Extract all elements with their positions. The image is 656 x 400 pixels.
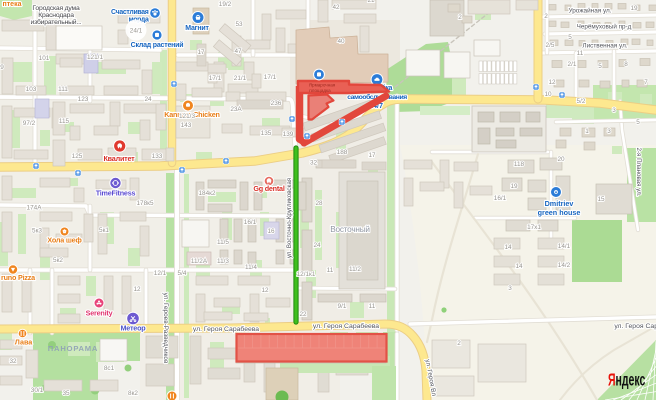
svg-text:11/2: 11/2 [349,266,361,273]
svg-text:121/1: 121/1 [87,54,103,61]
svg-text:Восточный: Восточный [330,225,370,234]
svg-text:5/4: 5/4 [178,270,187,277]
svg-text:Dmitriev: Dmitriev [545,199,574,208]
svg-text:32: 32 [9,358,17,365]
svg-text:Gg dental: Gg dental [253,184,285,193]
svg-text:12/1: 12/1 [154,270,167,277]
svg-text:47: 47 [234,48,242,55]
svg-text:ул. Восточно-Кругликовская: ул. Восточно-Кругликовская [286,178,293,258]
svg-text:12/1к1: 12/1к1 [297,271,316,278]
svg-text:5/2: 5/2 [577,98,586,105]
svg-text:21: 21 [367,0,375,4]
svg-text:11/3: 11/3 [217,258,229,265]
svg-text:111: 111 [58,86,68,93]
svg-text:Serenity: Serenity [86,309,113,318]
svg-text:14/1: 14/1 [558,243,571,250]
svg-text:28: 28 [315,200,323,207]
svg-text:ул. Героя Сараб: ул. Героя Сараб [614,322,656,330]
svg-text:Урожайная ул.: Урожайная ул. [568,7,611,15]
svg-text:101: 101 [39,55,50,62]
svg-text:5: 5 [598,63,602,70]
svg-text:2: 2 [457,340,461,347]
svg-text:5к2: 5к2 [53,257,63,264]
svg-text:3: 3 [508,285,512,292]
svg-text:Черёмуховый пр-д: Черёмуховый пр-д [577,23,632,31]
svg-text:14/2: 14/2 [558,262,571,269]
svg-text:5к1: 5к1 [99,227,109,234]
svg-text:птека: птека [3,1,22,8]
svg-text:30/1: 30/1 [31,387,44,394]
svg-text:5: 5 [568,34,572,41]
svg-text:8: 8 [624,61,628,68]
svg-text:9/1: 9/1 [338,303,347,310]
svg-text:избирательный...: избирательный... [31,18,82,26]
svg-text:14: 14 [504,244,512,251]
svg-text:Краснодара: Краснодара [38,12,74,19]
svg-text:14: 14 [515,263,523,270]
svg-text:9: 9 [0,64,4,71]
svg-text:15: 15 [597,196,605,203]
svg-text:24/1: 24/1 [130,28,143,35]
svg-text:143: 143 [181,122,192,129]
svg-text:3: 3 [607,128,611,135]
svg-text:20: 20 [557,156,565,163]
svg-text:17/1: 17/1 [264,74,277,81]
svg-text:площадка: площадка [309,88,331,93]
svg-text:Лиственная ул.: Лиственная ул. [582,43,627,50]
svg-text:17: 17 [197,49,205,56]
svg-text:Склад растений: Склад растений [131,41,184,49]
svg-text:42: 42 [332,4,340,11]
svg-text:97/2: 97/2 [23,120,36,127]
svg-text:7: 7 [644,79,648,86]
svg-text:8с1: 8с1 [104,365,115,372]
svg-text:19: 19 [630,5,638,12]
svg-text:17х1: 17х1 [527,224,541,231]
svg-text:Хола шеф: Хола шеф [47,236,81,245]
svg-text:139: 139 [283,131,294,138]
svg-text:2: 2 [458,14,462,21]
svg-text:11: 11 [577,50,584,57]
svg-text:Яндекс: Яндекс [608,371,645,390]
svg-text:Ярмарочная: Ярмарочная [309,83,336,88]
svg-text:115: 115 [59,118,70,125]
svg-text:121/3: 121/3 [179,113,195,120]
svg-text:16/1: 16/1 [244,219,257,226]
svg-text:16/1: 16/1 [494,195,507,202]
svg-text:8к2: 8к2 [128,390,138,397]
svg-text:11: 11 [369,303,376,310]
svg-text:1: 1 [585,128,589,135]
svg-text:2-я Плановая ул.: 2-я Плановая ул. [635,148,642,197]
svg-text:23А: 23А [230,106,242,113]
svg-text:5: 5 [636,119,640,126]
svg-text:2: 2 [544,13,548,20]
svg-text:Квалитет: Квалитет [103,154,135,163]
svg-text:174А: 174А [27,205,43,212]
svg-text:16: 16 [267,228,275,235]
svg-text:Городская дума: Городская дума [32,5,80,12]
svg-text:17/1: 17/1 [209,75,222,82]
svg-text:10: 10 [544,91,552,98]
svg-text:5к3: 5к3 [32,228,42,235]
svg-text:40: 40 [337,38,345,45]
svg-text:Лава: Лава [15,338,34,347]
svg-text:53: 53 [235,21,243,28]
svg-text:ул. Героев-Разведчиков: ул. Героев-Разведчиков [162,293,169,364]
svg-text:236: 236 [271,100,282,107]
svg-text:11: 11 [327,267,334,274]
svg-text:11/4: 11/4 [245,264,257,271]
svg-text:184к2: 184к2 [198,190,215,197]
svg-text:35: 35 [62,390,70,397]
svg-text:22: 22 [299,311,307,318]
svg-text:21/1: 21/1 [234,75,247,82]
svg-text:2/5: 2/5 [546,42,555,49]
svg-text:11/5: 11/5 [217,239,229,246]
svg-text:TimeFitness: TimeFitness [96,189,136,198]
svg-text:123: 123 [78,96,89,103]
svg-text:ул. Героя Сарабеева: ул. Героя Сарабеева [193,325,259,333]
svg-text:2/1: 2/1 [568,61,577,68]
svg-text:32: 32 [310,160,318,167]
svg-text:green house: green house [538,208,581,217]
svg-text:19/2: 19/2 [219,1,232,8]
svg-text:17: 17 [368,152,376,159]
svg-text:103: 103 [26,86,37,93]
svg-text:11/2А: 11/2А [191,258,208,265]
svg-text:12: 12 [548,79,556,86]
svg-text:12: 12 [261,287,269,294]
svg-text:Магнит: Магнит [185,25,209,32]
svg-text:Метеор: Метеор [121,324,147,333]
svg-text:135: 135 [261,130,272,137]
svg-text:3: 3 [612,107,616,114]
svg-text:24: 24 [144,96,152,103]
svg-text:178к5: 178к5 [136,200,153,207]
svg-text:19: 19 [510,183,518,190]
svg-text:118: 118 [514,161,525,168]
svg-text:ПАНОРАМА: ПАНОРАМА [48,344,98,353]
svg-text:ул. Героя Сарабеева: ул. Героя Сарабеева [313,322,379,330]
svg-text:125: 125 [72,153,83,160]
svg-text:runo Pizza: runo Pizza [1,273,36,282]
svg-text:188: 188 [337,149,348,156]
svg-text:Счастливая: Счастливая [111,9,149,16]
svg-text:133: 133 [152,153,163,160]
svg-text:12: 12 [133,286,141,293]
svg-text:24: 24 [313,242,321,249]
